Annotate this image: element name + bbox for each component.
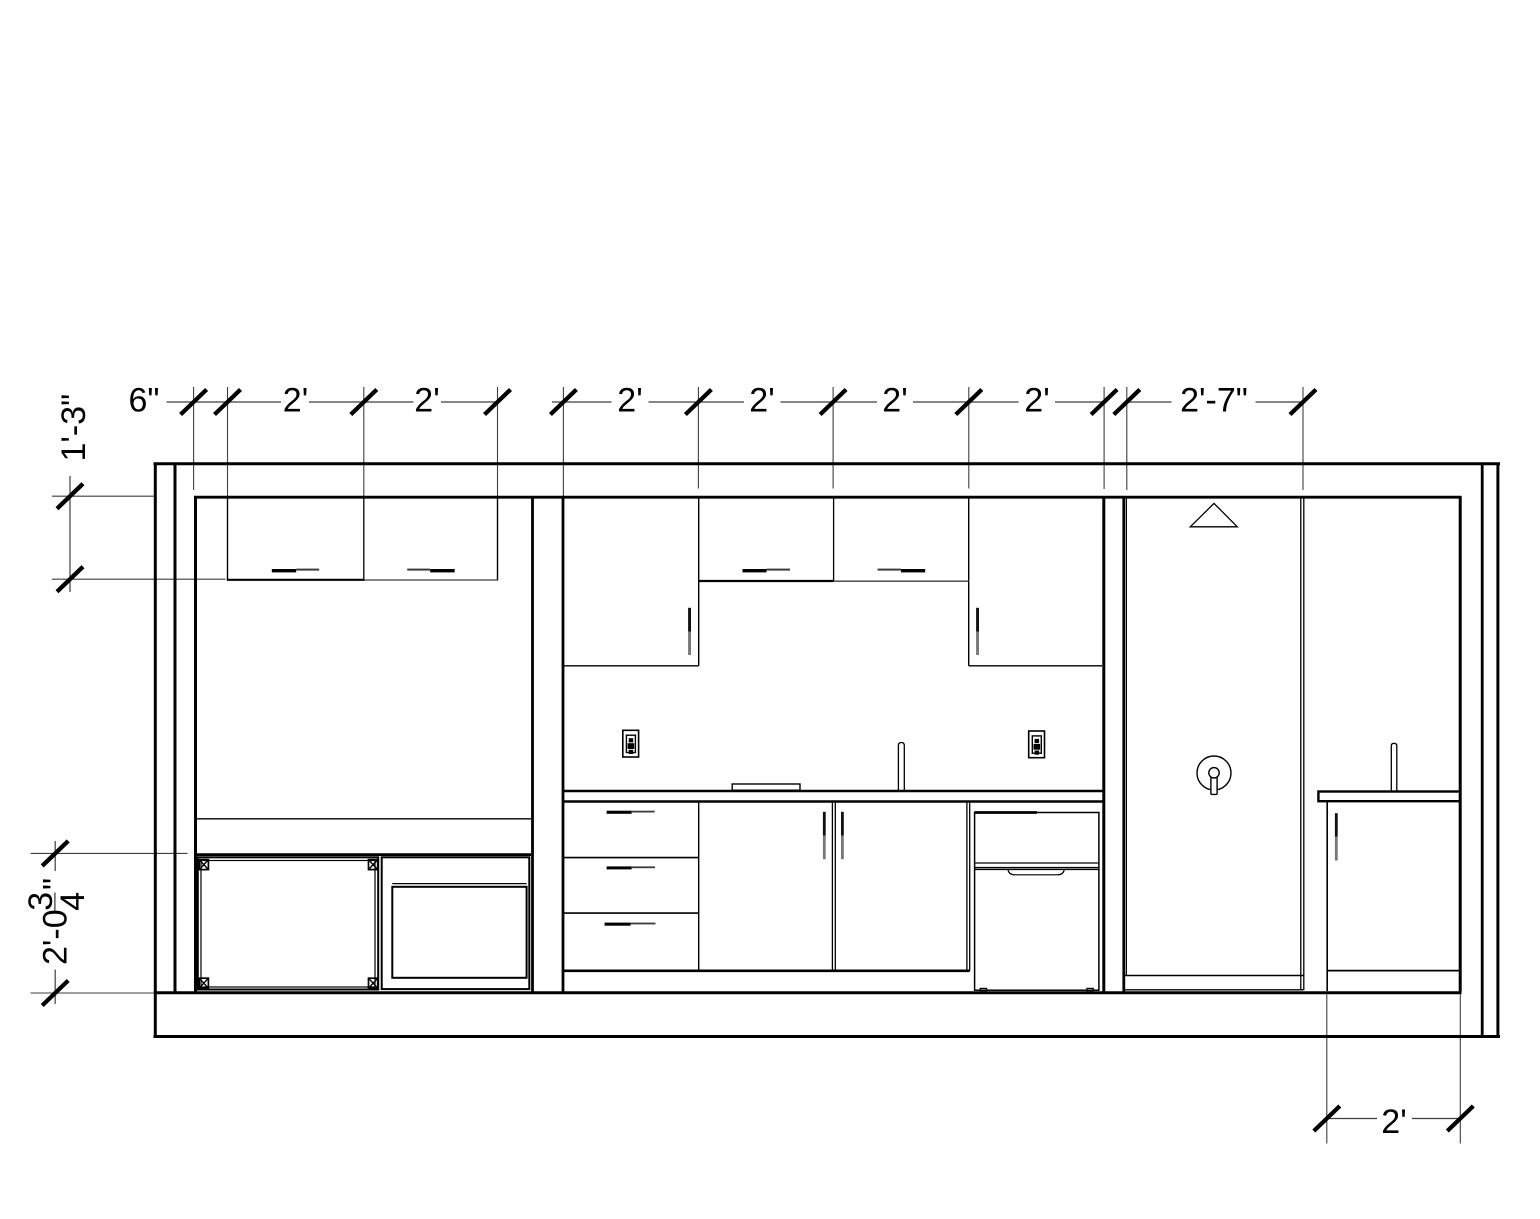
svg-text:2': 2' [882, 382, 907, 420]
svg-text:2'-7": 2'-7" [1180, 382, 1248, 420]
svg-text:4: 4 [54, 892, 92, 911]
svg-text:": " [37, 878, 75, 890]
svg-text:6": 6" [129, 382, 160, 420]
svg-text:2'-0: 2'-0 [37, 909, 75, 965]
svg-text:2': 2' [1381, 1103, 1406, 1141]
svg-text:2': 2' [1024, 382, 1049, 420]
svg-text:1'-3": 1'-3" [55, 394, 93, 462]
svg-text:2': 2' [414, 382, 439, 420]
svg-text:2': 2' [617, 382, 642, 420]
svg-text:2': 2' [283, 382, 308, 420]
svg-text:2': 2' [749, 382, 774, 420]
